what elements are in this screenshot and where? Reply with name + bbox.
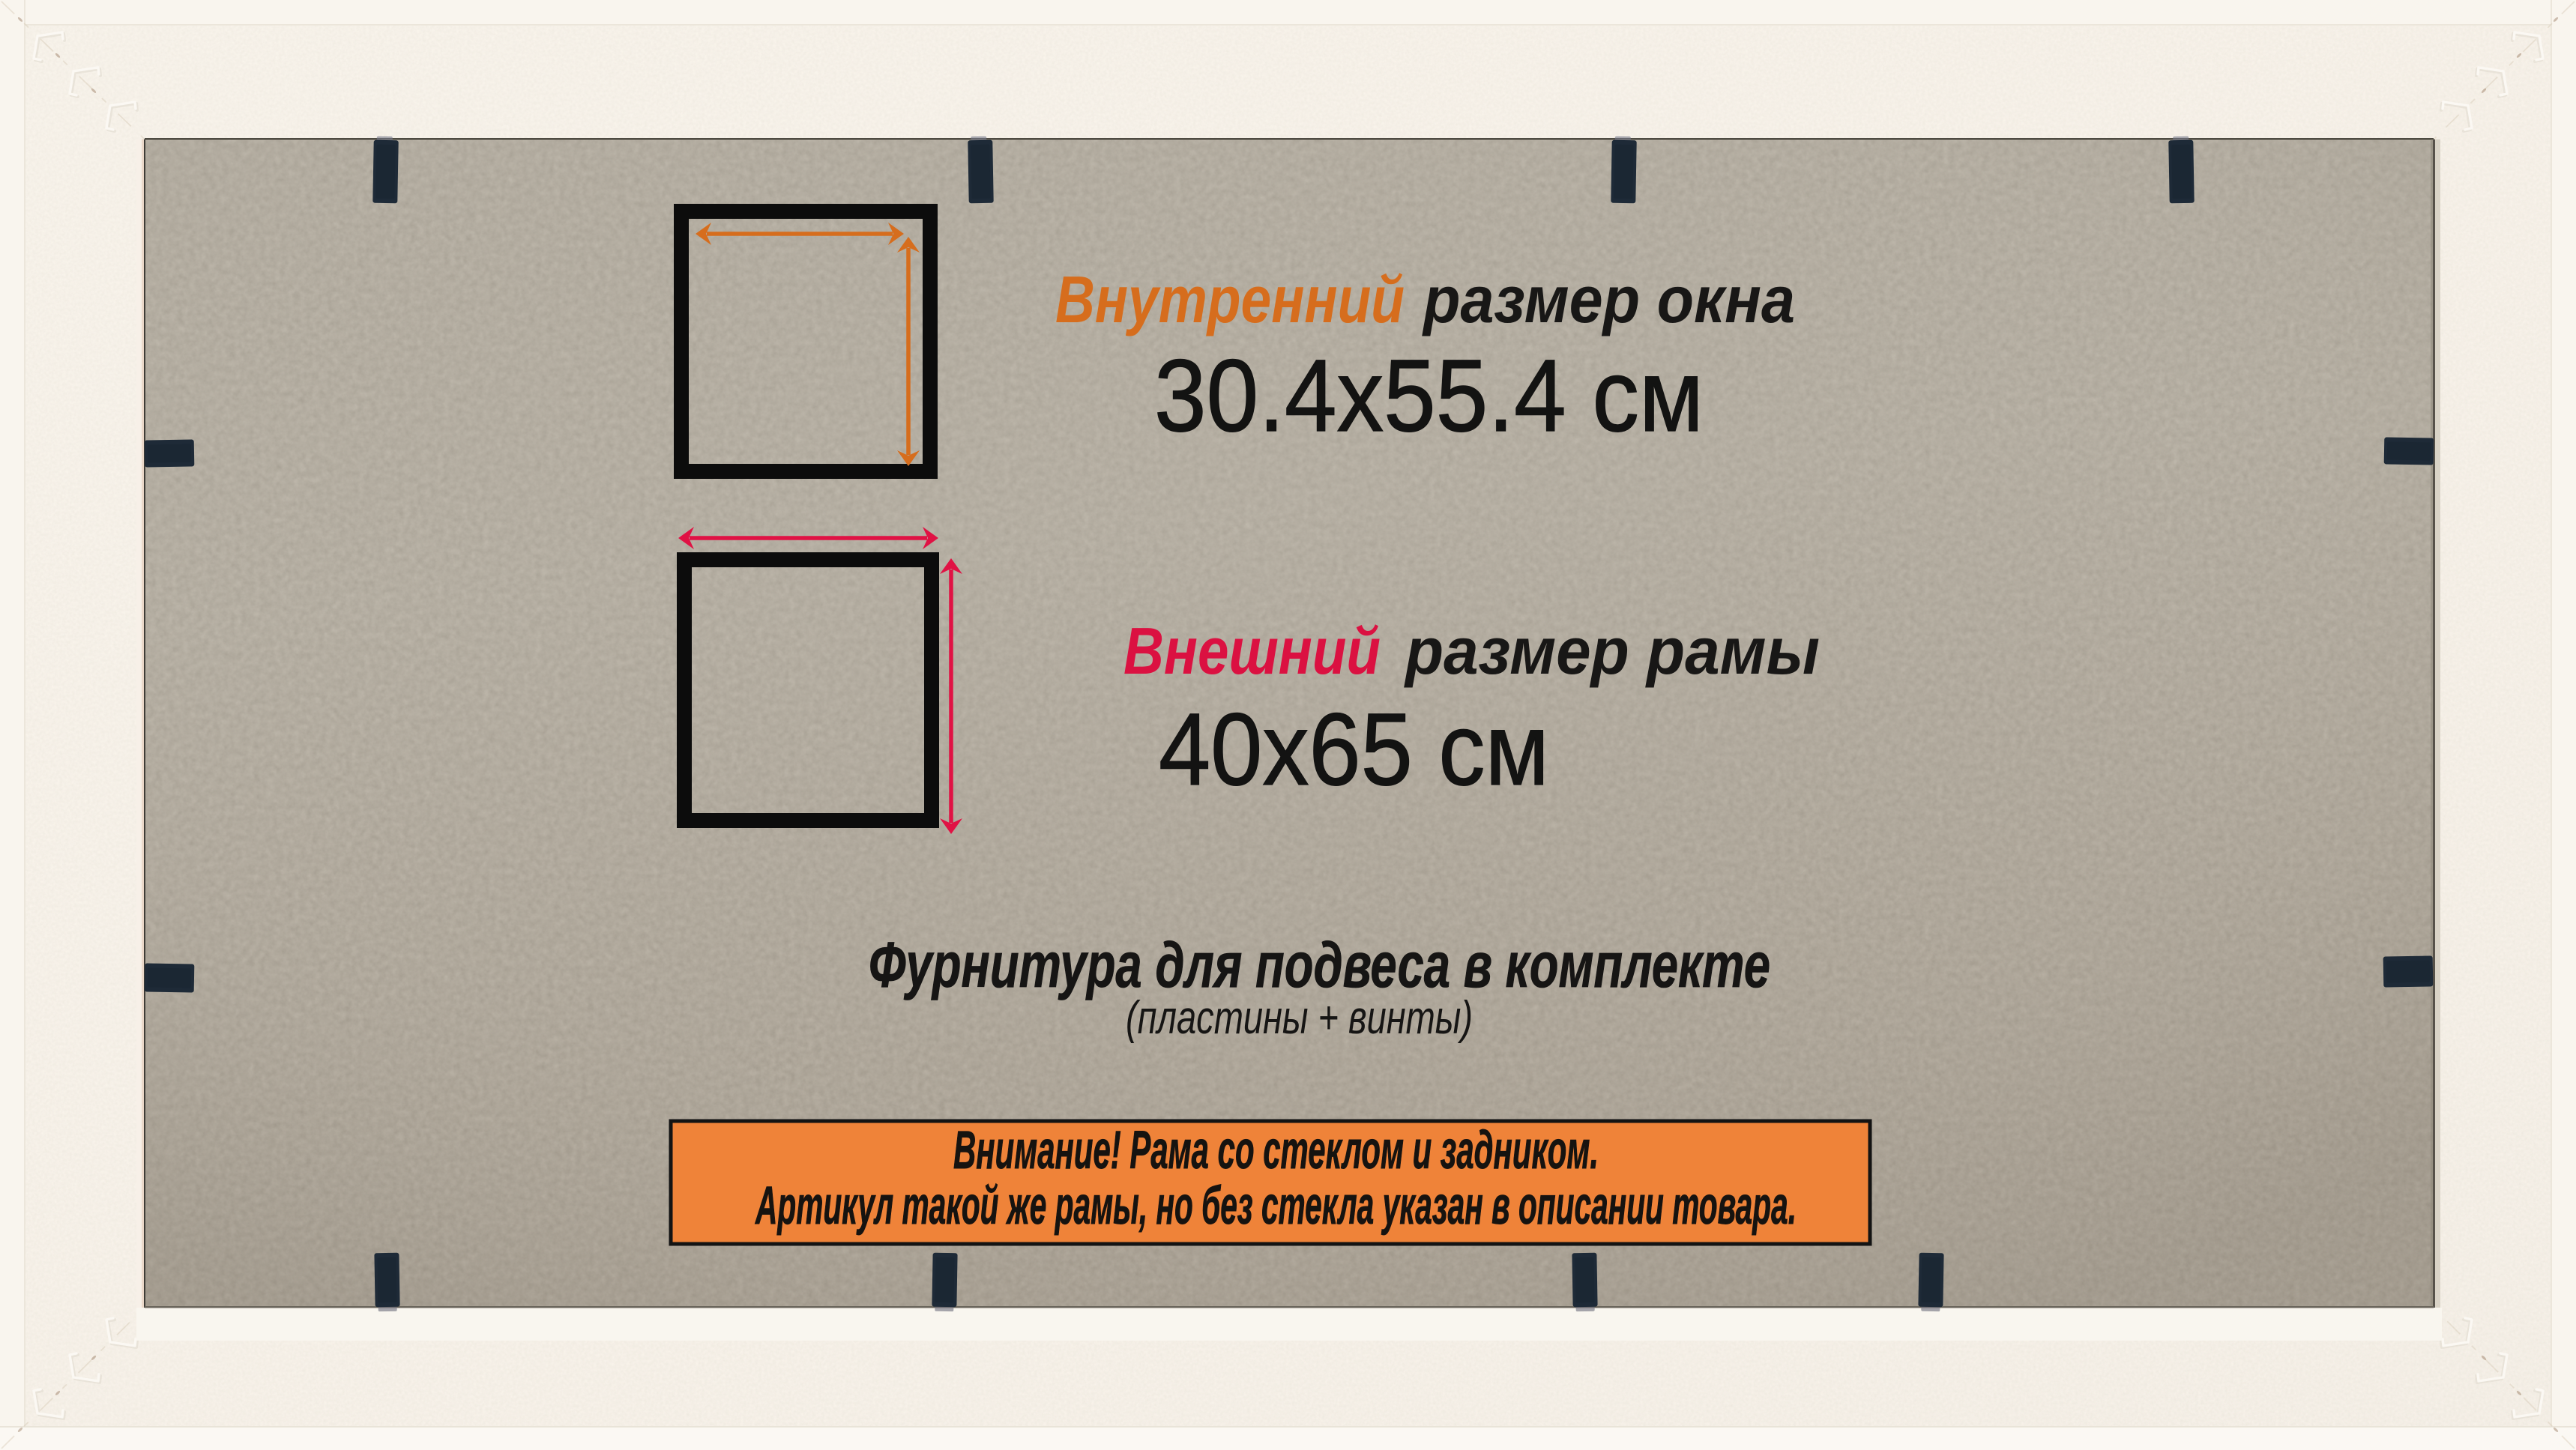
svg-text:Внимание! Рама со стеклом и за: Внимание! Рама со стеклом и задником. [953, 1121, 1599, 1180]
svg-text:размер окна: размер окна [1422, 262, 1795, 336]
svg-text:40x65 см: 40x65 см [1159, 692, 1549, 807]
svg-text:Внутренний: Внутренний [1055, 262, 1405, 336]
svg-text:Артикул такой же рамы, но без: Артикул такой же рамы, но без стекла ука… [755, 1176, 1797, 1236]
svg-text:(пластины + винты): (пластины + винты) [1126, 992, 1473, 1044]
svg-text:размер рамы: размер рамы [1404, 614, 1820, 688]
svg-text:Внешний: Внешний [1123, 614, 1381, 688]
svg-text:Фурнитура для подвеса в компле: Фурнитура для подвеса в комплекте [869, 930, 1770, 1001]
svg-text:30.4x55.4 см: 30.4x55.4 см [1154, 339, 1704, 453]
